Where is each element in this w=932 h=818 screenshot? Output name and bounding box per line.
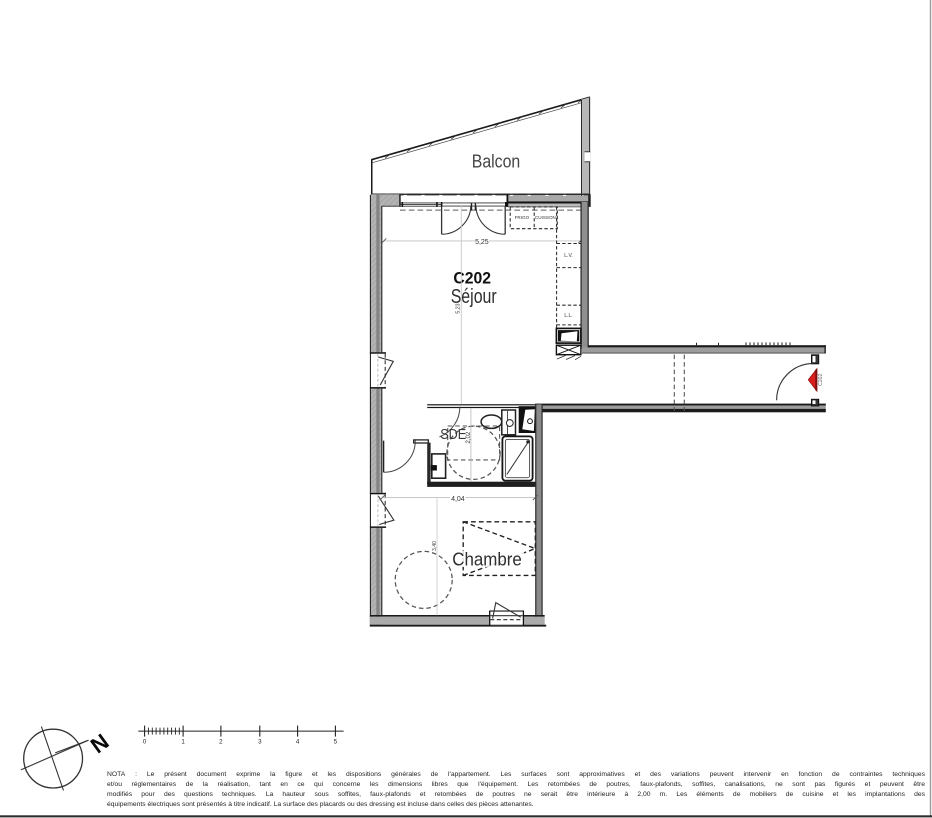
- svg-text:0: 0: [143, 739, 147, 746]
- svg-text:2: 2: [219, 739, 223, 746]
- svg-text:2,02: 2,02: [466, 431, 472, 443]
- svg-text:C202: C202: [453, 270, 491, 288]
- svg-text:Balcon: Balcon: [472, 151, 521, 172]
- svg-text:L.V.: L.V.: [564, 253, 572, 259]
- svg-text:5: 5: [334, 739, 338, 746]
- svg-text:5,23: 5,23: [456, 303, 462, 313]
- svg-text:SDE: SDE: [440, 426, 466, 443]
- svg-text:Chambre: Chambre: [452, 548, 522, 569]
- svg-text:FRIGO: FRIGO: [515, 215, 530, 220]
- svg-text:3,40: 3,40: [432, 541, 438, 551]
- svg-text:CUISSON: CUISSON: [535, 215, 556, 220]
- svg-text:L.L.: L.L.: [564, 313, 572, 319]
- svg-text:3: 3: [258, 739, 262, 746]
- svg-text:5,25: 5,25: [475, 239, 489, 246]
- svg-text:1: 1: [181, 739, 185, 746]
- svg-text:4,04: 4,04: [451, 496, 465, 503]
- svg-text:4: 4: [296, 739, 300, 746]
- svg-text:C202: C202: [818, 373, 824, 386]
